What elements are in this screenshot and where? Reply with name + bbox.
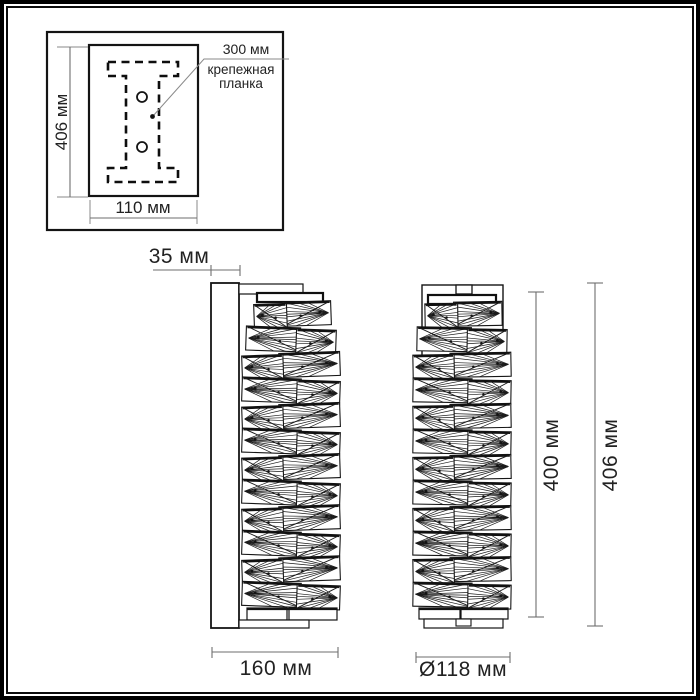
top-trim-side [257,293,323,302]
inset-width-label: 110 мм [115,198,170,217]
crystal-block [425,303,458,328]
hanger-tab-front [456,285,472,294]
crystal-row [413,454,511,481]
crystal-block [413,480,472,505]
width-label: 160 мм [240,657,313,680]
crystal-row [413,531,511,558]
crystal-block [279,505,341,531]
crystal-row [242,402,341,431]
crystal-block [279,402,341,428]
crystal-block [417,327,472,352]
crystal-block [296,584,340,609]
crystal-block [413,582,472,607]
crystal-block [413,378,472,403]
lamp-height-label: 400 мм [540,419,563,492]
crystal-block [279,454,341,480]
crystal-block [282,301,331,327]
inset-height-label: 406 мм [52,94,71,150]
crystal-row [242,351,341,380]
crystal-block [279,556,341,582]
crystal-block [242,479,302,505]
crystal-block [296,329,337,354]
crystal-block [468,584,512,609]
crystal-block [468,533,512,558]
crystal-block [413,508,455,533]
crystal-row [413,403,511,430]
crystal-row [413,557,511,584]
crystal-row [242,479,341,508]
crystal-row [417,327,507,354]
crystal-block [450,454,511,479]
callout-caption-line2: планка [219,76,263,91]
crystal-row [242,428,341,457]
wall-sconce-dimension-sheet: 300 мм крепежная планка 406 мм 110 мм 35… [0,0,700,700]
crystal-block [279,351,341,377]
crystal-row [425,301,502,328]
crystal-row [242,454,341,483]
bottom-bracket-side [239,620,309,628]
crystal-block [242,530,302,556]
base-notch-front [456,619,471,626]
crystal-block [242,581,302,607]
backplate-outline [89,45,198,196]
crystal-block [296,533,340,558]
crystal-block [242,508,284,533]
crystal-block [413,354,455,379]
crystal-block [296,380,340,405]
callout-value-label: 300 мм [223,41,270,57]
crystal-block [254,303,288,328]
callout-caption-line1: крепежная [208,62,275,77]
diameter-label: Ø118 мм [419,658,507,681]
crystal-row [413,352,511,379]
crystal-block [242,428,302,454]
crystal-row [413,429,511,456]
crystal-block [413,457,455,482]
crystal-block [450,506,511,531]
crystal-block [413,559,455,584]
crystal-row [413,378,511,405]
crystal-block [468,380,512,405]
crystal-row [242,581,341,610]
crystal-block [468,482,512,507]
crystal-row [242,377,341,406]
mounting-plate-inset: 300 мм крепежная планка 406 мм 110 мм [47,32,289,230]
crystal-row [254,301,332,329]
depth-label: 35 мм [149,245,210,268]
crystal-row [242,505,341,534]
crystal-block [450,403,511,428]
crystal-block [450,557,511,582]
wall-plate-side [211,283,239,628]
total-height-label: 406 мм [599,419,622,492]
crystal-row [242,530,341,559]
crystal-row [413,582,511,609]
crystal-block [242,355,284,380]
crystal-block [242,377,302,403]
crystal-block [296,482,340,507]
callout-anchor-dot [150,114,155,119]
front-view: Ø118 мм 400 мм 406 мм [413,283,622,681]
crystal-row [413,480,511,507]
crystal-block [246,326,301,352]
crystal-block [296,431,340,456]
crystal-block [467,329,507,354]
side-crystal-stack [242,301,341,610]
crystal-block [242,457,284,482]
crystal-block [454,301,503,326]
crystal-block [413,429,472,454]
crystal-block [450,352,511,377]
crystal-block [468,431,512,456]
side-view: 35 мм 160 мм [149,245,341,680]
crystal-row [242,556,341,585]
crystal-block [242,559,284,584]
crystal-block [413,406,455,431]
front-crystal-stack [413,301,511,609]
crystal-block [242,406,284,431]
technical-drawing-svg: 300 мм крепежная планка 406 мм 110 мм 35… [0,0,700,700]
crystal-row [413,506,511,533]
crystal-block [413,531,472,556]
crystal-row [246,326,337,354]
